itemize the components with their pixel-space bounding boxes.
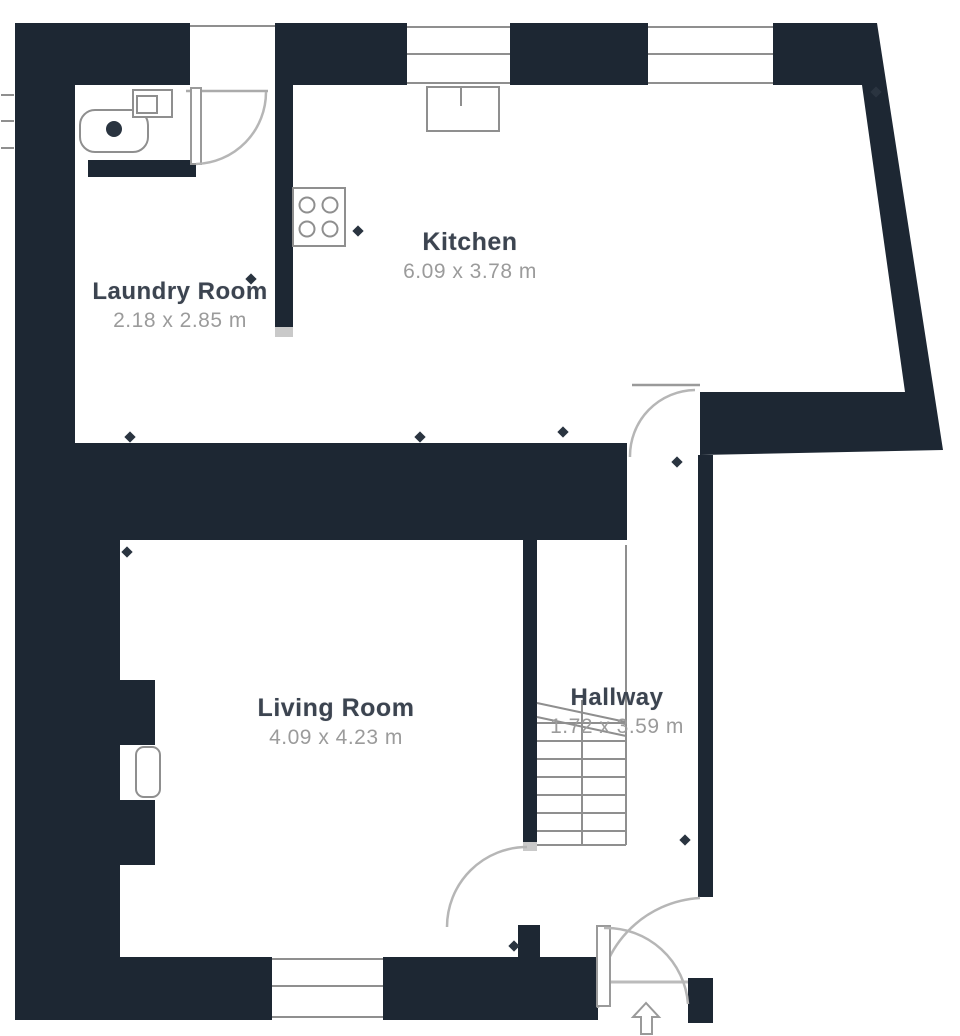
living-room-dimensions: 4.09 x 4.23 m (258, 726, 415, 750)
wall-bottom-right (383, 957, 598, 1020)
living-room-label: Living Room 4.09 x 4.23 m (258, 694, 415, 750)
wall-laundry-kitchen-divider (275, 85, 293, 327)
hallway-label: Hallway 1.72 x 3.59 m (550, 684, 684, 739)
kitchen-sink-icon (427, 87, 499, 131)
laundry-room-dimensions: 2.18 x 2.85 m (92, 309, 267, 333)
front-entrance-door-icon (597, 926, 688, 1006)
wall-hallway-right (698, 455, 713, 897)
wall-caps (275, 327, 537, 851)
wall-top-kitchen-left (275, 23, 407, 85)
kitchen-top-window-left-icon (407, 27, 510, 83)
wall-stub-living-door (518, 925, 540, 957)
laundry-back-door-icon (186, 88, 268, 164)
living-room-door-icon (447, 847, 527, 927)
stove-icon (293, 188, 345, 246)
front-door-jamb (688, 978, 713, 1023)
fixtures (80, 87, 659, 1034)
wall-middle-band (15, 443, 627, 540)
chimney-breast-upper (115, 680, 155, 745)
chimney-breast-lower (115, 800, 155, 865)
wall-top-kitchen-mid (510, 23, 648, 85)
hallway-name: Hallway (550, 684, 684, 712)
laundry-room-label: Laundry Room 2.18 x 2.85 m (92, 278, 267, 333)
kitchen-hallway-door-icon (630, 385, 700, 457)
washing-machine-icon (133, 90, 172, 117)
kitchen-top-window-right-icon (648, 27, 773, 83)
entrance-arrow-icon (633, 1003, 659, 1034)
hallway-dimensions: 1.72 x 3.59 m (550, 715, 684, 739)
wall-living-room-right (523, 540, 537, 842)
kitchen-name: Kitchen (403, 228, 537, 257)
wall-left-lower (15, 540, 120, 1020)
bath-nook-partition (88, 160, 196, 177)
kitchen-label: Kitchen 6.09 x 3.78 m (403, 228, 537, 284)
laundry-room-name: Laundry Room (92, 278, 267, 306)
living-room-name: Living Room (258, 694, 415, 723)
wall-right-slanted (700, 23, 943, 455)
wall-bottom-left (15, 957, 272, 1020)
wall-left-upper (15, 23, 75, 443)
divider-end-cap (275, 327, 293, 337)
floor-plan-drawing (0, 0, 960, 1036)
living-room-bottom-window-icon (272, 959, 383, 1017)
vestibule-door-icon (598, 898, 700, 1008)
fireplace-icon (136, 747, 160, 797)
kitchen-dimensions: 6.09 x 3.78 m (403, 260, 537, 284)
walls (15, 23, 943, 1023)
floor-plan: Kitchen 6.09 x 3.78 m Laundry Room 2.18 … (0, 0, 960, 1036)
laundry-side-window-icon (1, 95, 14, 148)
doors (186, 88, 700, 1008)
